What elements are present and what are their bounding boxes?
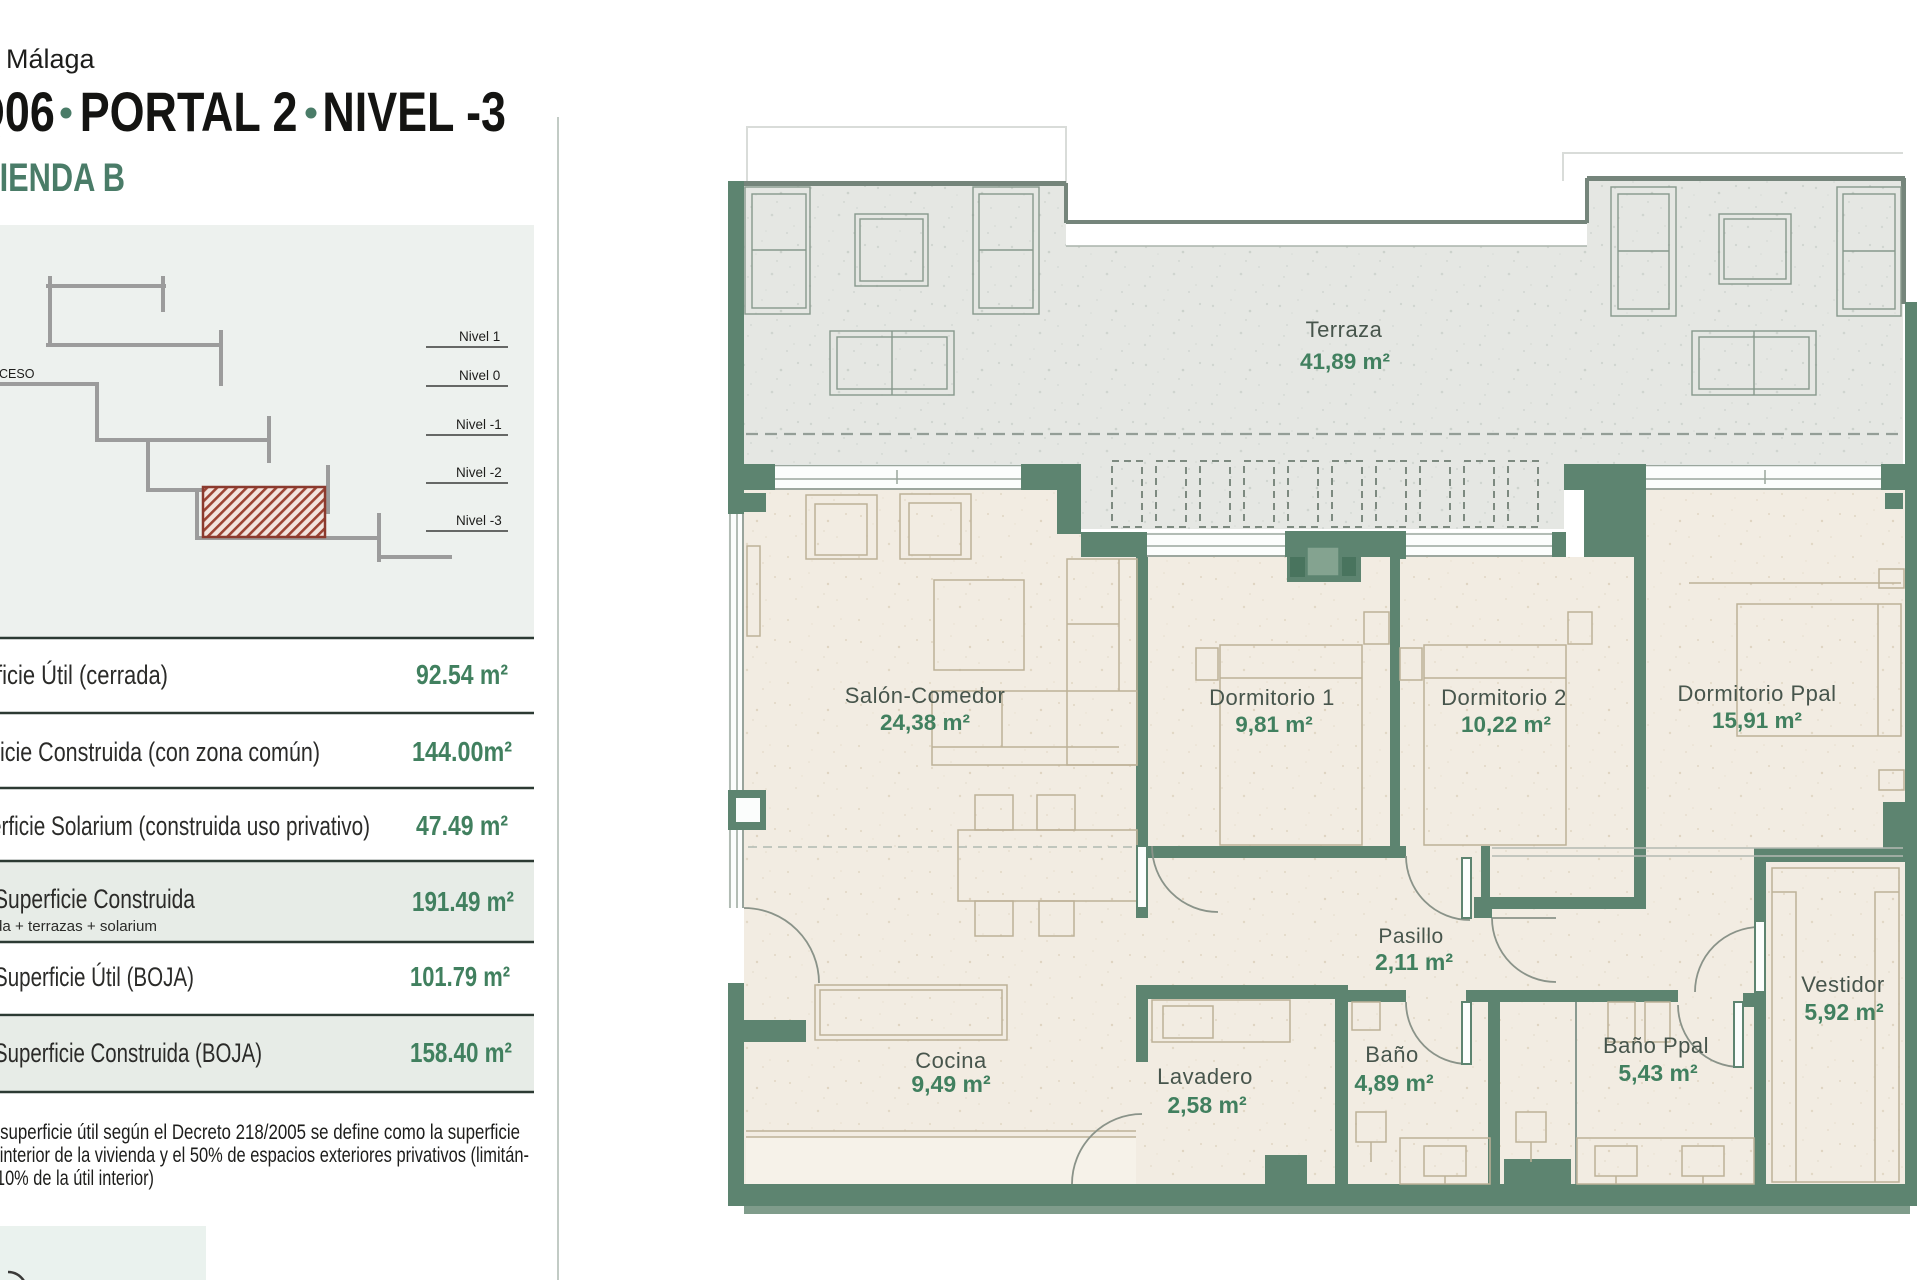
svg-text:4,89 m²: 4,89 m² (1354, 1070, 1434, 1096)
svg-text:ficie Útil (cerrada): ficie Útil (cerrada) (0, 659, 168, 690)
svg-text:VIVIENDA B: VIVIENDA B (0, 156, 125, 200)
svg-text:15,91 m²: 15,91 m² (1712, 708, 1803, 733)
svg-text:Nivel 1: Nivel 1 (459, 329, 500, 344)
svg-text:Nivel -2: Nivel -2 (456, 465, 502, 480)
svg-text:101.79 m²: 101.79 m² (410, 961, 510, 992)
svg-text:41,89 m²: 41,89 m² (1300, 349, 1391, 374)
svg-text:Q06 PORTAL 2 NIVEL -3: Q06 PORTAL 2 NIVEL -3 (0, 80, 506, 143)
svg-text:158.40 m²: 158.40 m² (410, 1037, 512, 1068)
svg-text:Nivel 0: Nivel 0 (459, 368, 500, 383)
svg-text:Nivel -1: Nivel -1 (456, 417, 502, 432)
svg-text:erficie Solarium (construida u: erficie Solarium (construida uso privati… (0, 811, 370, 841)
svg-text:Dormitorio 1: Dormitorio 1 (1209, 685, 1335, 710)
svg-text:Superficie Construida: Superficie Construida (0, 884, 196, 914)
svg-text:Pasillo: Pasillo (1378, 925, 1443, 948)
svg-text:Nivel -3: Nivel -3 (456, 513, 502, 528)
svg-text:92.54 m²: 92.54 m² (416, 659, 508, 690)
svg-text:144.00m²: 144.00m² (412, 736, 512, 767)
svg-text:Cocina: Cocina (915, 1048, 987, 1073)
svg-text:5,43 m²: 5,43 m² (1618, 1060, 1698, 1086)
svg-text:2,58 m²: 2,58 m² (1167, 1092, 1247, 1118)
svg-text:o interior de la vivienda y el: o interior de la vivienda y el 50% de es… (0, 1144, 529, 1167)
svg-text:CESO: CESO (0, 367, 35, 381)
svg-text:a superficie útil según el Dec: a superficie útil según el Decreto 218/2… (0, 1121, 520, 1144)
svg-text:9,81 m²: 9,81 m² (1235, 712, 1313, 737)
svg-text:Salón-Comedor: Salón-Comedor (845, 683, 1006, 708)
svg-text:Dormitorio 2: Dormitorio 2 (1441, 685, 1567, 710)
svg-text:Dormitorio Ppal: Dormitorio Ppal (1677, 681, 1836, 706)
svg-text:Baño: Baño (1365, 1042, 1418, 1067)
svg-text:Terraza: Terraza (1306, 317, 1383, 342)
svg-text:10% de la útil interior): 10% de la útil interior) (0, 1167, 154, 1190)
svg-text:24,38 m²: 24,38 m² (880, 710, 971, 735)
svg-text:191.49 m²: 191.49 m² (412, 886, 514, 917)
svg-text:ficie Construida (con zona com: ficie Construida (con zona común) (0, 737, 320, 767)
svg-text:Vestidor: Vestidor (1801, 972, 1885, 997)
svg-text:Lavadero: Lavadero (1157, 1064, 1253, 1089)
svg-text:2,11 m²: 2,11 m² (1375, 949, 1453, 975)
svg-text:9,49 m²: 9,49 m² (911, 1071, 991, 1097)
svg-text:5,92 m²: 5,92 m² (1804, 999, 1884, 1025)
svg-text:Superficie Útil (BOJA): Superficie Útil (BOJA) (0, 961, 194, 992)
svg-text:da + terrazas + solarium: da + terrazas + solarium (0, 918, 157, 935)
svg-text:47.49 m²: 47.49 m² (416, 810, 508, 841)
svg-text:Baño Ppal: Baño Ppal (1603, 1033, 1709, 1058)
svg-text:10,22 m²: 10,22 m² (1461, 712, 1552, 737)
svg-text:Superficie Construida (BOJA): Superficie Construida (BOJA) (0, 1038, 262, 1068)
svg-text:Málaga: Málaga (6, 44, 96, 74)
